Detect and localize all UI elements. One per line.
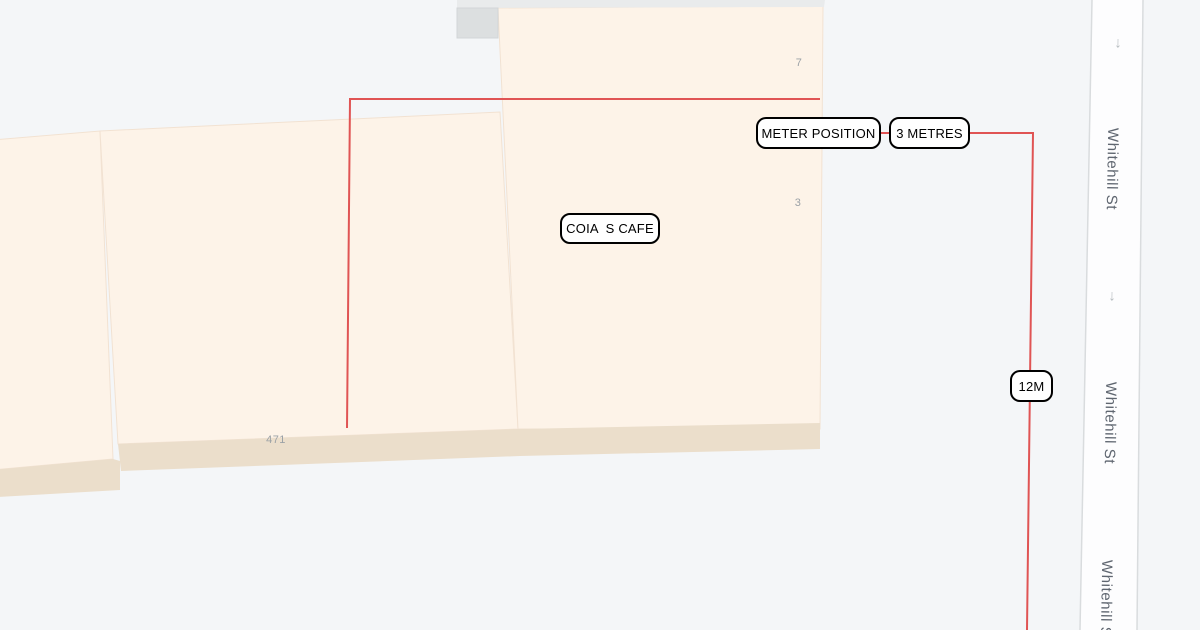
street-name-label: Whitehill St	[1101, 382, 1119, 465]
building-number-471: 471	[266, 434, 286, 446]
building-gray-block	[457, 8, 498, 38]
meter-position-callout: METER POSITION	[756, 117, 881, 149]
building-number-3: 3	[795, 197, 802, 209]
distance-12m-callout: 12M	[1010, 370, 1053, 402]
one-way-down-arrow-icon: ↓	[1114, 35, 1122, 50]
distance-3-metres-callout: 3 METRES	[889, 117, 970, 149]
map-layers	[0, 0, 1200, 630]
building-left	[0, 131, 113, 471]
building-gray-strip	[457, 0, 825, 8]
street-name-label: Whitehill St	[1103, 128, 1121, 211]
map-canvas: 7 3 471 ↓ ↓ Whitehill St Whitehill St Wh…	[0, 0, 1200, 630]
building-cafe	[498, 6, 823, 429]
annotation-line-meter-run	[800, 133, 1033, 630]
cafe-name-callout: COIA S CAFE	[560, 213, 660, 244]
building-middle	[100, 112, 518, 444]
one-way-down-arrow-icon: ↓	[1108, 288, 1116, 303]
building-number-7: 7	[796, 57, 803, 69]
street-name-label: Whitehill St	[1097, 560, 1115, 630]
